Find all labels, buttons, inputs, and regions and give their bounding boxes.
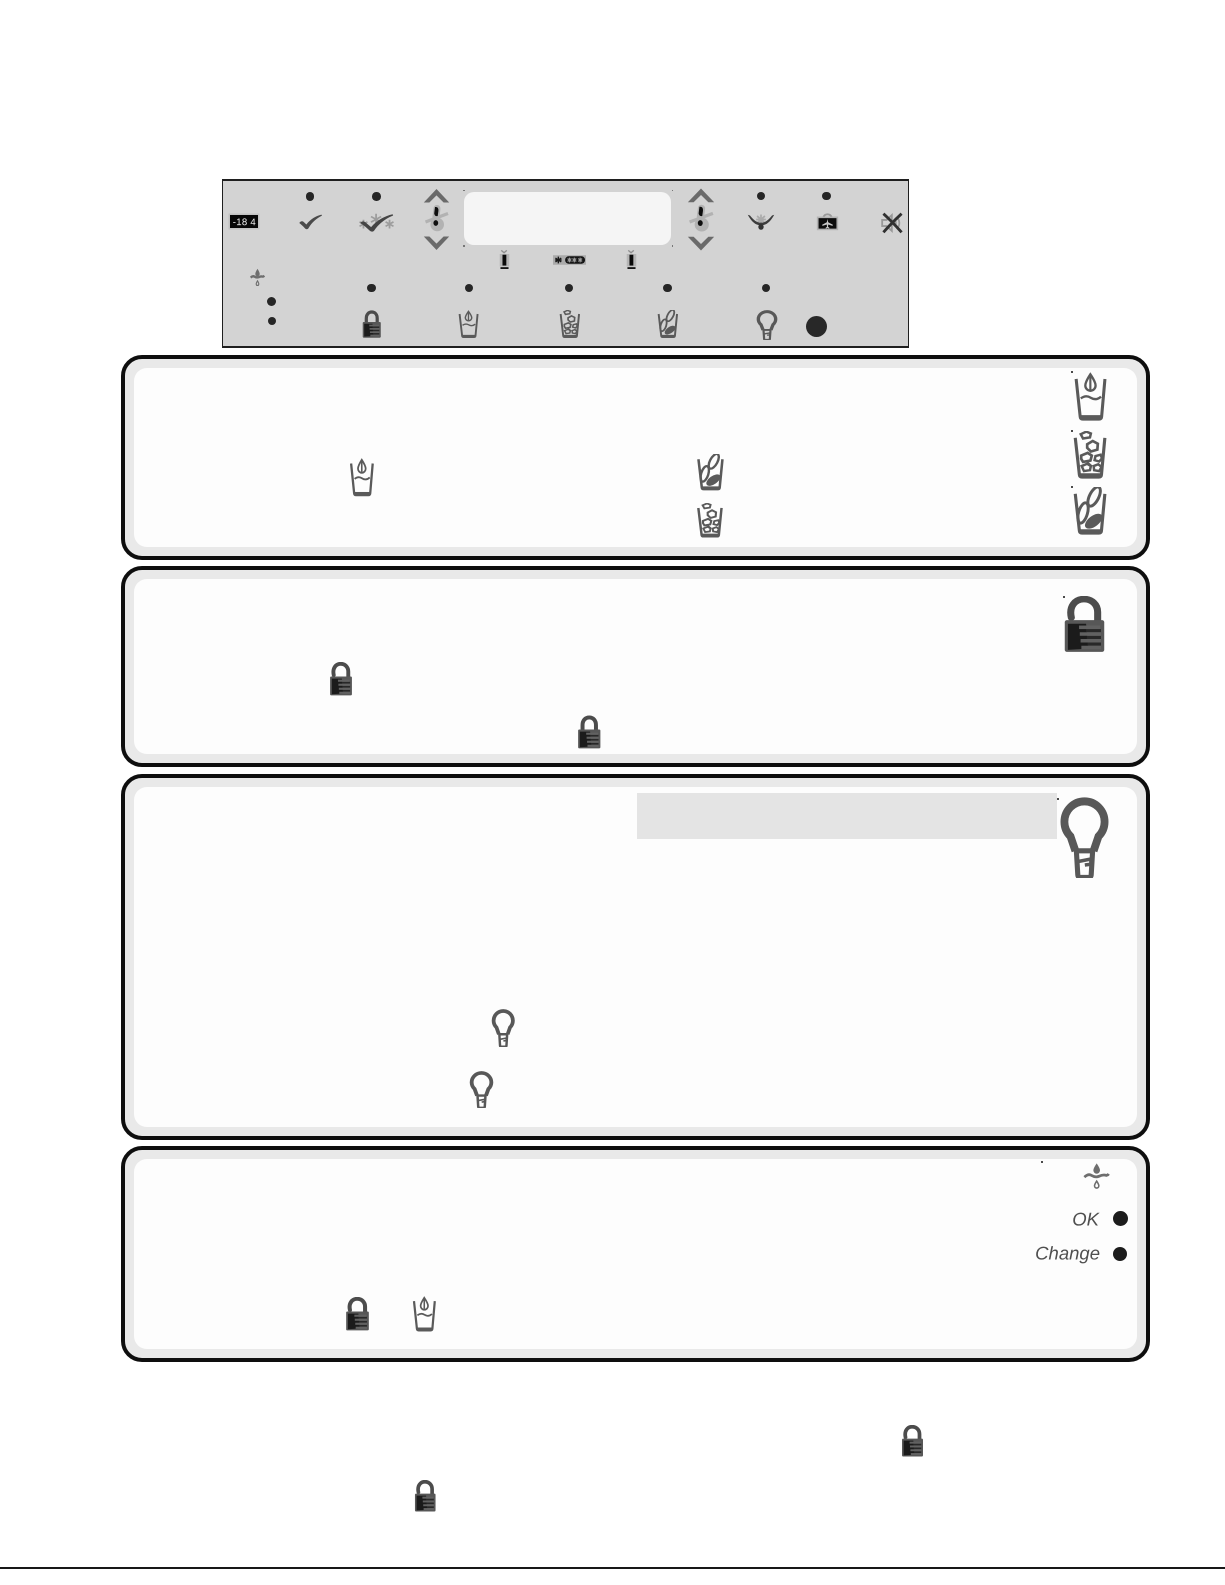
svg-text:-18 4: -18 4 <box>233 217 257 228</box>
svg-text:OK: OK <box>1072 1208 1100 1229</box>
svg-text:Change: Change <box>1035 1242 1100 1263</box>
